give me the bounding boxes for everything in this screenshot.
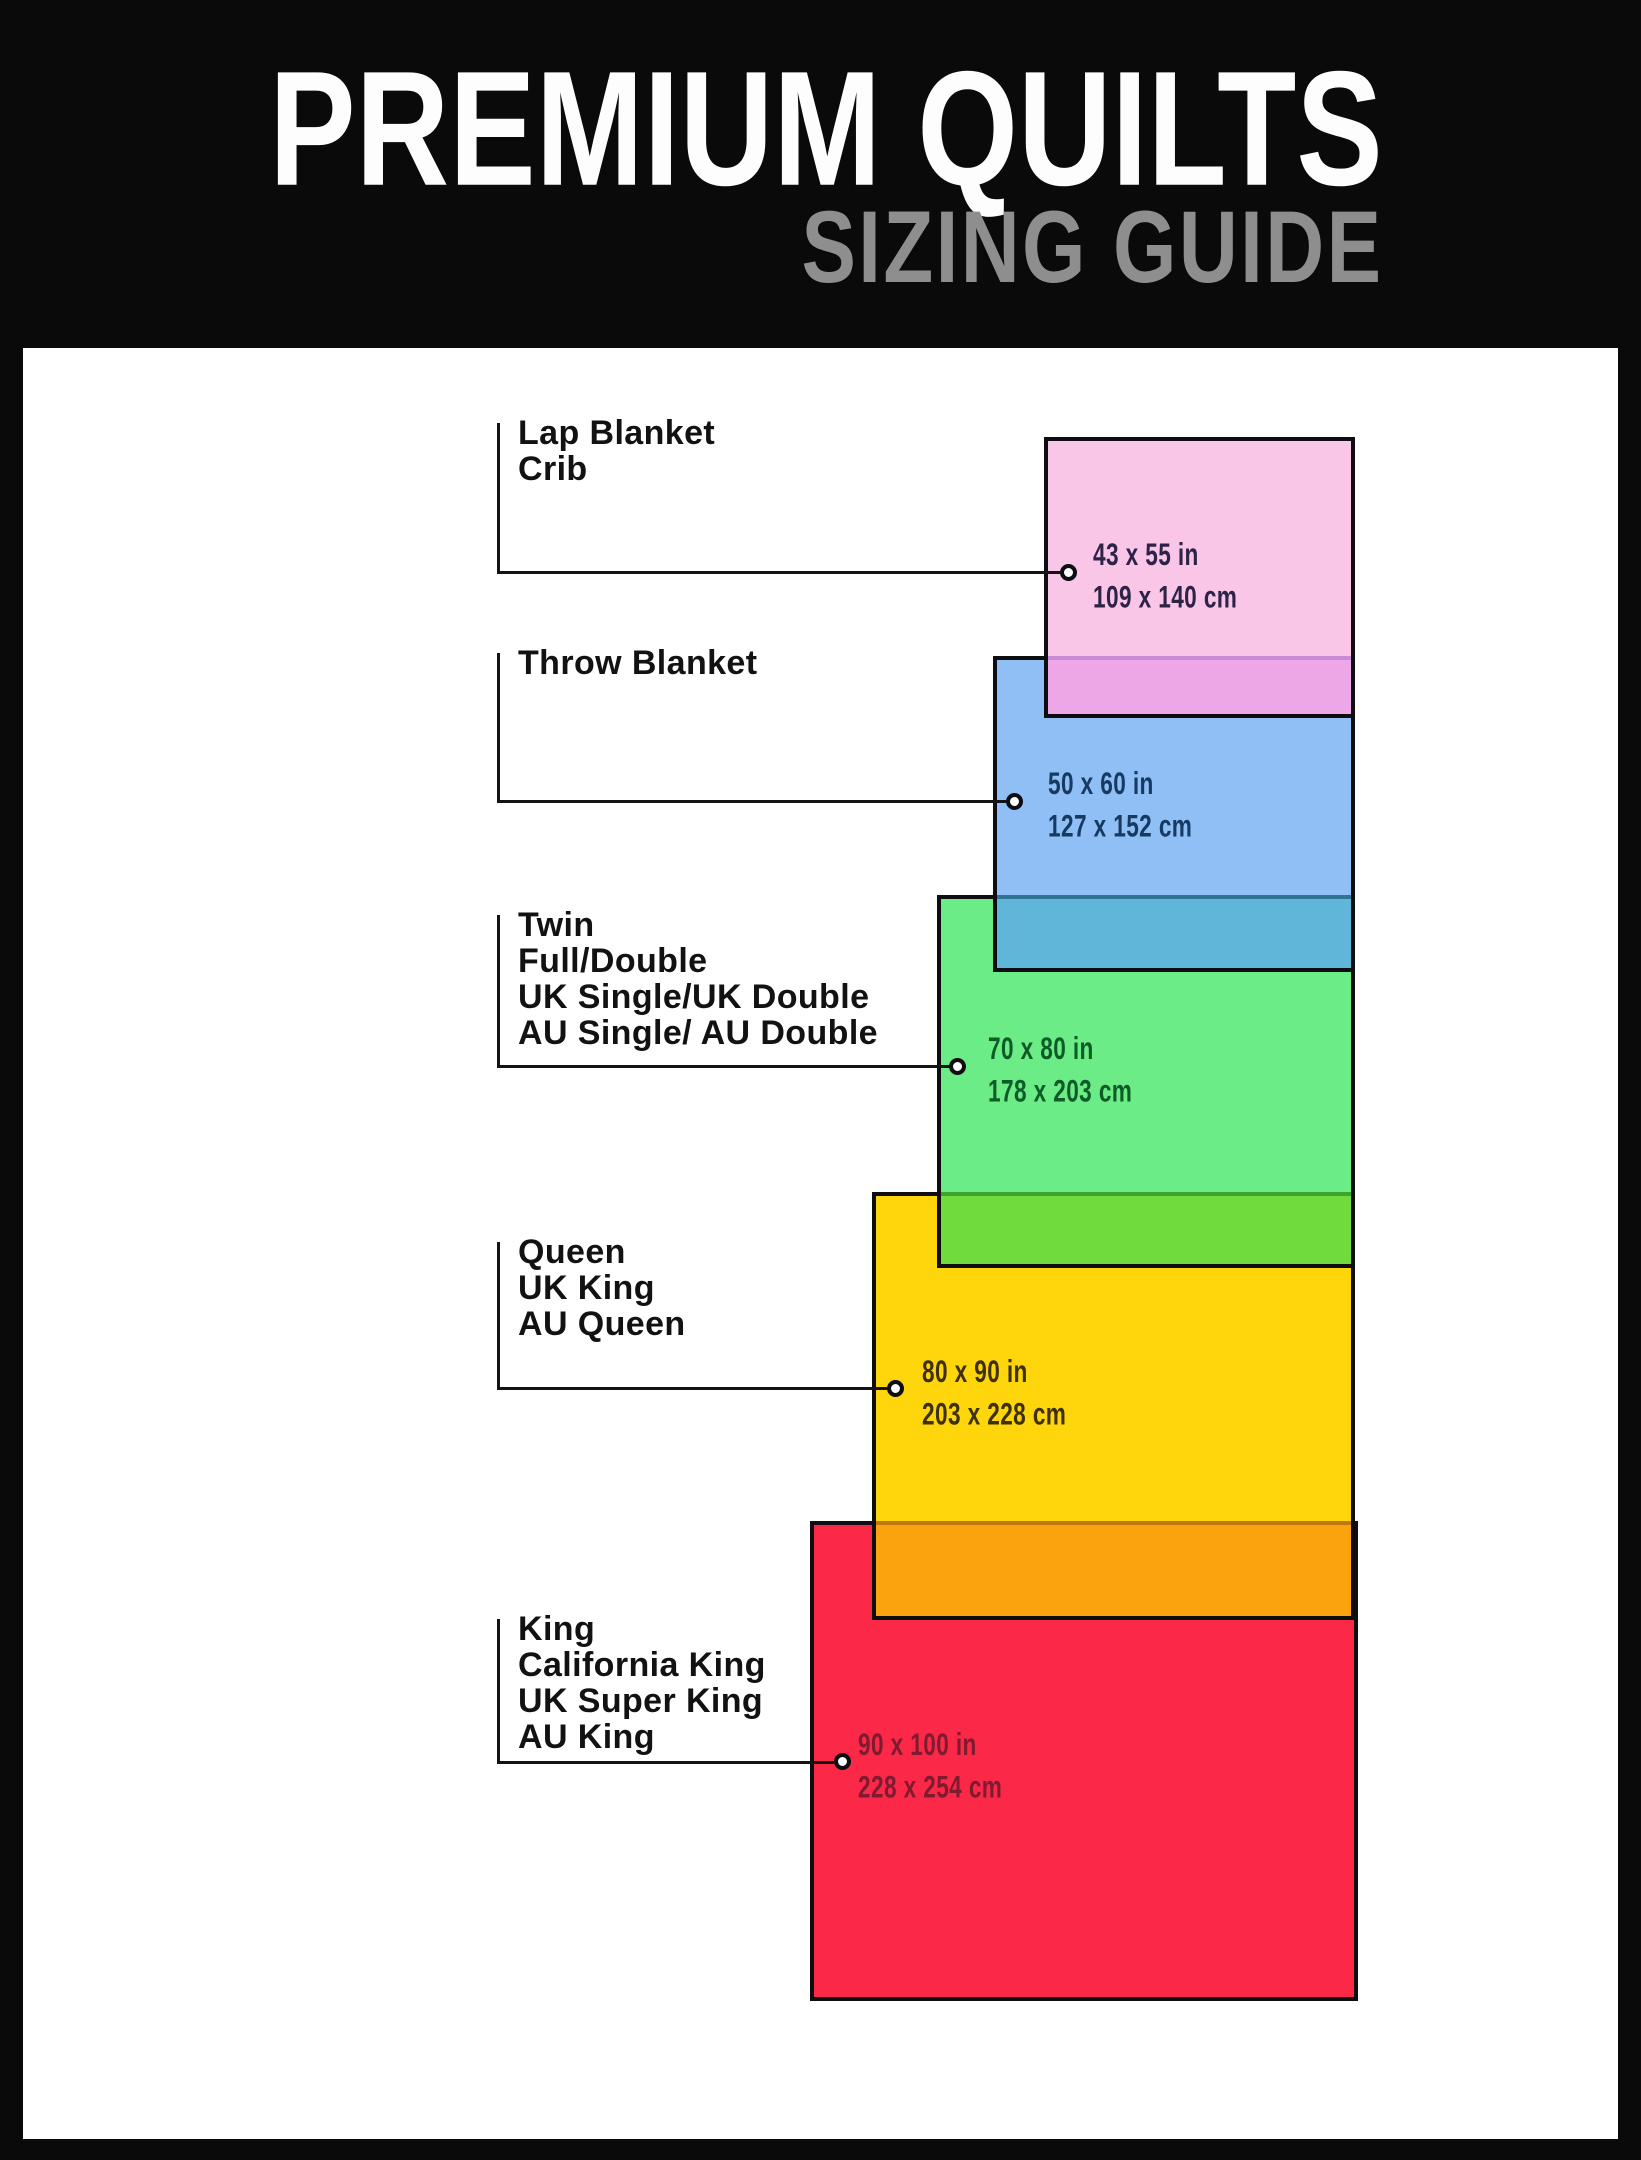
dimension-cm: 178 x 203 cm	[988, 1071, 1132, 1113]
overlap-band-lap-over-throw	[1048, 656, 1351, 714]
overlap-band-twin-over-queen	[941, 1192, 1351, 1264]
label-rule-twin	[497, 915, 500, 1067]
label-block-throw-blanket: Throw Blanket	[518, 645, 757, 681]
label-line: Throw Blanket	[518, 645, 757, 681]
label-rule-lap	[497, 423, 500, 573]
label-line: UK Single/UK Double	[518, 979, 878, 1015]
label-line: Queen	[518, 1234, 686, 1270]
dimension-cm: 228 x 254 cm	[858, 1767, 1002, 1809]
overlap-band-queen-over-king	[876, 1521, 1351, 1616]
circle-marker-lap	[1060, 564, 1077, 581]
label-line: AU King	[518, 1719, 766, 1755]
dimension-inches: 80 x 90 in	[922, 1352, 1066, 1394]
label-block-queen: Queen UK King AU Queen	[518, 1234, 686, 1342]
leader-line-king	[497, 1761, 834, 1764]
dimension-inches: 50 x 60 in	[1048, 764, 1192, 806]
dimension-inches: 90 x 100 in	[858, 1725, 1002, 1767]
circle-marker-queen	[887, 1380, 904, 1397]
circle-marker-king	[834, 1753, 851, 1770]
label-line: Lap Blanket	[518, 415, 715, 451]
dimension-label-throw: 50 x 60 in 127 x 152 cm	[1048, 764, 1192, 848]
label-line: King	[518, 1611, 766, 1647]
dimension-inches: 43 x 55 in	[1093, 535, 1237, 577]
label-block-king: King California King UK Super King AU Ki…	[518, 1611, 766, 1755]
dimension-cm: 109 x 140 cm	[1093, 577, 1237, 619]
page-title: PREMIUM QUILTS	[269, 47, 1383, 210]
leader-line-lap	[497, 571, 1060, 574]
page-subtitle: SIZING GUIDE	[801, 196, 1383, 298]
leader-line-throw	[497, 800, 1006, 803]
circle-marker-throw	[1006, 793, 1023, 810]
label-rule-queen	[497, 1242, 500, 1389]
infographic-page: PREMIUM QUILTS SIZING GUIDE Lap Blanket …	[0, 0, 1641, 2160]
label-line: UK King	[518, 1270, 686, 1306]
label-block-lap-blanket: Lap Blanket Crib	[518, 415, 715, 487]
label-line: Twin	[518, 907, 878, 943]
label-line: Full/Double	[518, 943, 878, 979]
dimension-label-queen: 80 x 90 in 203 x 228 cm	[922, 1352, 1066, 1436]
dimension-inches: 70 x 80 in	[988, 1029, 1132, 1071]
label-line: Crib	[518, 451, 715, 487]
dimension-cm: 127 x 152 cm	[1048, 806, 1192, 848]
dimension-label-lap: 43 x 55 in 109 x 140 cm	[1093, 535, 1237, 619]
overlap-band-throw-over-twin	[997, 895, 1351, 968]
leader-line-queen	[497, 1387, 887, 1390]
label-line: AU Queen	[518, 1306, 686, 1342]
label-line: California King	[518, 1647, 766, 1683]
label-line: AU Single/ AU Double	[518, 1015, 878, 1051]
leader-line-twin	[497, 1065, 949, 1068]
dimension-label-twin: 70 x 80 in 178 x 203 cm	[988, 1029, 1132, 1113]
dimension-label-king: 90 x 100 in 228 x 254 cm	[858, 1725, 1002, 1809]
label-line: UK Super King	[518, 1683, 766, 1719]
label-block-twin: Twin Full/Double UK Single/UK Double AU …	[518, 907, 878, 1051]
dimension-cm: 203 x 228 cm	[922, 1394, 1066, 1436]
circle-marker-twin	[949, 1058, 966, 1075]
label-rule-throw	[497, 653, 500, 803]
label-rule-king	[497, 1619, 500, 1763]
